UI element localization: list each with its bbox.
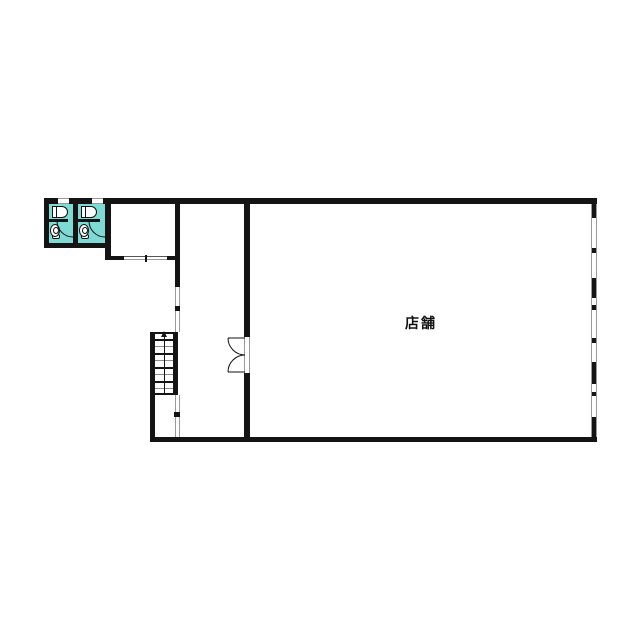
toilet-door-arc-icon xyxy=(57,221,73,237)
fixture-arcs-layer xyxy=(0,0,640,640)
floor-plan: 店舗 xyxy=(0,0,640,640)
shop-label: 店舗 xyxy=(391,313,451,333)
double-door-arc-icon xyxy=(228,355,245,372)
double-door-arc-icon xyxy=(228,338,245,355)
toilet-door-arc-icon xyxy=(89,221,105,237)
